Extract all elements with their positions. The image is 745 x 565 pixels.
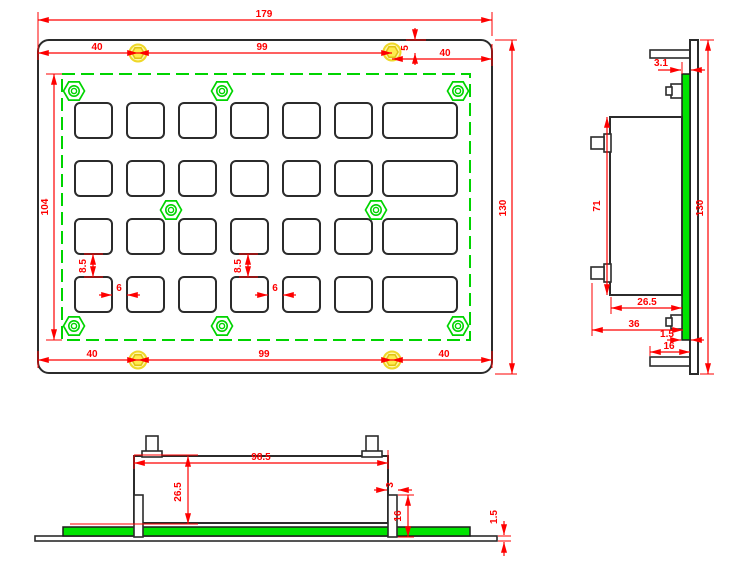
screw-head xyxy=(666,87,672,95)
key-button-wide xyxy=(383,277,457,312)
dim-side-body-depth: 26.5 xyxy=(637,297,657,308)
front-panel-outline xyxy=(38,40,492,373)
dim-front-bottom-left: 40 xyxy=(86,349,98,360)
dim-front-key-gap: 6 xyxy=(116,283,122,294)
side-pcb xyxy=(682,74,690,340)
stud-flange xyxy=(362,451,382,457)
side-view: 3.1 130 71 26.5 36 1.5 16 xyxy=(591,40,714,374)
dim-side-body-height: 71 xyxy=(592,200,603,212)
key-button xyxy=(179,103,216,138)
key-button xyxy=(127,219,164,254)
dim-front-bottom-span: 99 xyxy=(258,349,270,360)
dim-front-key-gap: 6 xyxy=(272,283,278,294)
stud-flange xyxy=(142,451,162,457)
dim-front-top-right: 40 xyxy=(439,48,451,59)
dim-front-top-span: 99 xyxy=(256,42,268,53)
key-button xyxy=(335,277,372,312)
key-button xyxy=(179,219,216,254)
key-button xyxy=(231,103,268,138)
key-button xyxy=(75,103,112,138)
key-button xyxy=(283,161,320,196)
dim-front-row-gap: 8.5 xyxy=(78,259,89,273)
key-button xyxy=(335,161,372,196)
side-housing xyxy=(610,117,682,295)
dim-bottom-panel-thickness: 1.5 xyxy=(489,510,500,524)
stud xyxy=(591,267,604,279)
key-button xyxy=(127,103,164,138)
mount-tab xyxy=(650,50,690,58)
stud xyxy=(591,137,604,149)
key-button-wide xyxy=(383,161,457,196)
key-button xyxy=(231,161,268,196)
bottom-pcb xyxy=(63,527,470,536)
mount-tab xyxy=(650,357,690,366)
stud xyxy=(146,436,158,452)
dim-front-top-left: 40 xyxy=(91,42,103,53)
dim-bottom-body-height: 26.5 xyxy=(173,482,184,502)
key-button xyxy=(335,103,372,138)
key-button xyxy=(231,219,268,254)
screw xyxy=(134,495,143,537)
key-button xyxy=(127,161,164,196)
dim-front-top-inset: 5 xyxy=(400,45,411,51)
engineering-drawing: 179 40 99 5 40 130 104 8.5 8.5 xyxy=(0,0,745,565)
key-button xyxy=(179,277,216,312)
bottom-view: 98.5 26.5 3 16 1.5 xyxy=(35,436,511,556)
screw-hole-marker-icon xyxy=(384,44,401,61)
key-button xyxy=(179,161,216,196)
key-button-wide xyxy=(383,219,457,254)
dim-side-total-depth: 36 xyxy=(628,319,640,330)
key-button xyxy=(75,219,112,254)
dim-front-height: 130 xyxy=(498,199,509,216)
dim-front-total-width: 179 xyxy=(256,9,273,20)
dim-front-cutout-height: 104 xyxy=(40,198,51,215)
key-button xyxy=(335,219,372,254)
dim-bottom-mount-span: 98.5 xyxy=(251,452,271,463)
dim-front-row-gap: 8.5 xyxy=(233,259,244,273)
stud xyxy=(366,436,378,452)
screw-head xyxy=(666,318,672,326)
dim-side-height: 130 xyxy=(695,199,706,216)
dim-bottom-screw-width: 3 xyxy=(385,482,396,488)
dim-side-panel-stack: 3.1 xyxy=(654,58,668,69)
drawing-canvas: 179 40 99 5 40 130 104 8.5 8.5 xyxy=(0,0,745,565)
dim-side-pcb-thickness: 1.5 xyxy=(660,329,674,340)
dim-front-bottom-right: 40 xyxy=(438,349,450,360)
key-button xyxy=(75,161,112,196)
dim-side-tab-length: 16 xyxy=(663,341,675,352)
key-button-wide xyxy=(383,103,457,138)
front-view: 179 40 99 5 40 130 104 8.5 8.5 xyxy=(38,9,517,374)
key-button xyxy=(283,103,320,138)
dim-bottom-screw-length: 16 xyxy=(393,510,404,522)
key-button xyxy=(283,219,320,254)
